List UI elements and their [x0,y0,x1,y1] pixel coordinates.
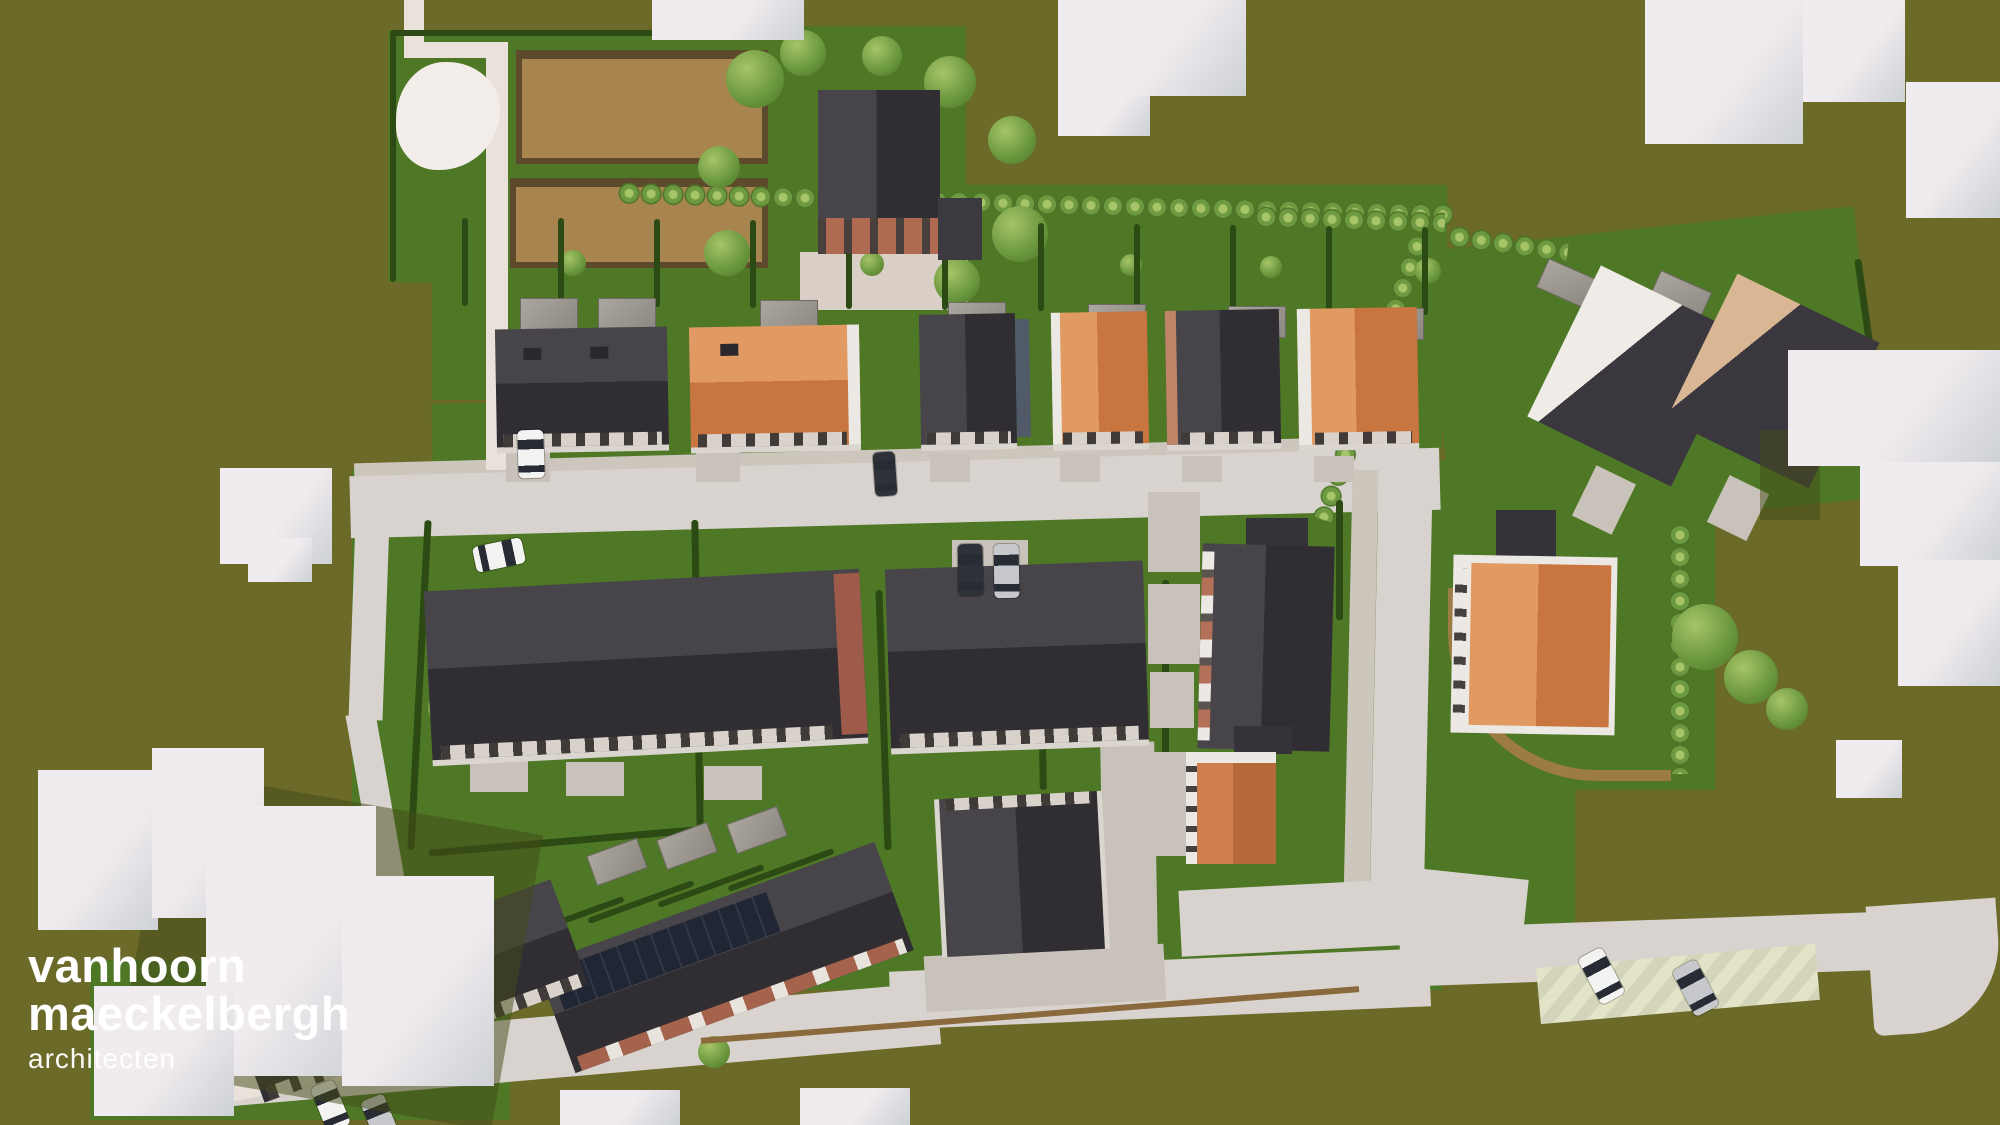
left-path-upper [349,519,390,720]
driveway-pad [696,452,740,482]
logo-line-1: vanhoorn [28,942,350,990]
architect-logo: vanhoorn maeckelbergh architecten [28,942,350,1073]
tree [726,50,784,108]
shrub [860,252,884,276]
house-dark-roof-5 [1165,309,1281,451]
south-road-end-curve [1866,898,2000,1037]
vertical-street [1369,469,1433,930]
block-D-roof [1469,563,1612,727]
context-building [1906,82,2000,218]
context-building [1645,0,1803,144]
hedge [1134,224,1140,312]
hedge [654,219,660,307]
terrace-pad [1144,752,1186,856]
roof-hatch [590,346,608,358]
context-building [800,1088,910,1125]
hedge [1326,226,1332,314]
context-building [560,1090,680,1125]
terrace-pad [1148,584,1200,664]
house-facade [1315,431,1412,445]
shrub [1260,256,1282,278]
car-dark [872,451,897,496]
hedge [462,218,468,306]
car-dark [958,544,984,596]
driveway-pad [1314,456,1354,482]
hedge [1038,223,1044,311]
house-orange-roof-4 [1051,311,1149,451]
block-E-roofband [1186,752,1276,763]
terrace-pad [1150,672,1194,728]
context-building [1803,0,1905,102]
house-facade [1062,431,1143,444]
terrace-pad [704,766,762,800]
context-building [342,876,494,1086]
terrace-pad [1148,492,1200,572]
car-white [517,430,545,479]
rowhouse-block-A [424,569,869,767]
context-building [1836,740,1902,798]
building-facade-west [1453,569,1468,719]
gable-wall [847,325,861,445]
brick-wall [1165,311,1178,445]
house-facade [698,432,848,448]
car-silver [994,544,1020,598]
logo-line-3: architecten [28,1045,350,1074]
roof-hatch [523,348,541,360]
building-facade [901,726,1139,748]
hedge-plots-left [390,34,396,282]
gable-wall [1051,313,1062,445]
farmhouse [818,90,940,254]
tree [1766,688,1808,730]
hedge [1230,225,1236,313]
hedge [558,218,564,306]
driveway-pad [1060,454,1100,482]
driveway-pad [930,454,970,482]
farmhouse-annex [938,198,982,260]
block-C-connector [1234,726,1292,754]
tree [1672,604,1738,670]
roof-hatch [720,343,738,355]
house-orange-roof-2 [689,325,861,454]
hedge [1422,227,1428,315]
shadow-wall [1015,319,1031,437]
tree [704,230,750,276]
apartment-block-E-orange [1186,752,1276,864]
apartment-block-C [1197,543,1334,751]
apartment-block-D [1450,555,1617,736]
farmhouse-facade [818,218,940,254]
context-building [652,0,804,40]
house-G-dark [934,791,1110,958]
garden-shed [520,298,578,330]
block-E-wall-west [1186,752,1197,864]
context-building [38,770,158,930]
driveway-pad [1182,456,1222,482]
gable-wall [1297,309,1312,445]
context-building [1788,350,2000,466]
context-building [248,538,312,582]
hedge [750,220,756,308]
tree [988,116,1036,164]
tree [862,36,902,76]
hedge [1336,500,1343,620]
house-orange-roof-6 [1297,307,1419,451]
context-building [1898,560,2000,686]
shrub [1415,258,1441,284]
site-plan-render: vanhoorn maeckelbergh architecten [0,0,2000,1125]
garden-shed [598,298,656,330]
terrace-pad [566,762,624,796]
context-building [1058,0,1246,96]
context-building [1860,462,2000,566]
plaza-road [1178,877,1441,957]
context-building [1058,96,1150,136]
logo-line-2: maeckelbergh [28,990,350,1038]
tree [934,258,980,304]
house-facade [1181,431,1275,445]
house-dark-roof-3 [919,313,1017,451]
tree [698,146,740,188]
house-facade [927,431,1012,444]
